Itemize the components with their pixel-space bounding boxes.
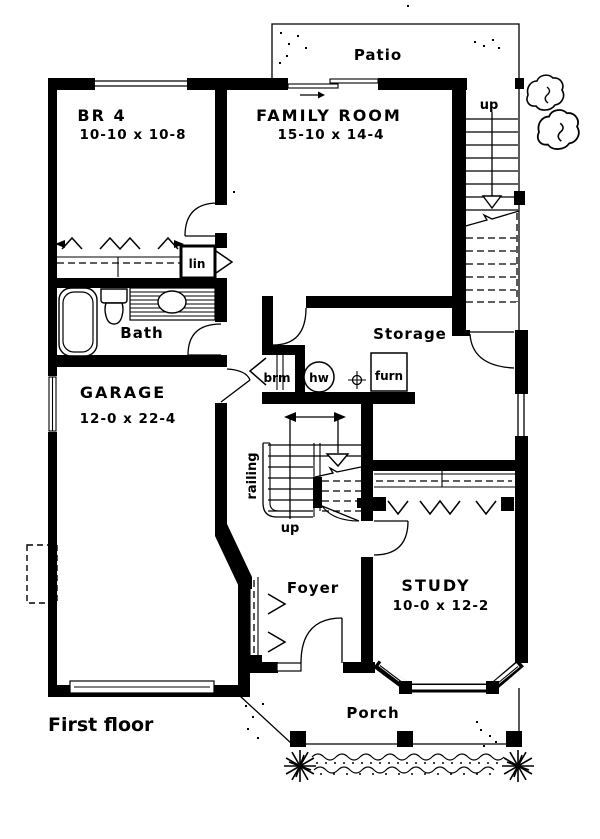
garage-label: GARAGE — [80, 383, 166, 402]
study-label: STUDY — [401, 576, 470, 595]
rear-stair-up-label: up — [480, 98, 499, 113]
br4-dims: 10-10 x 10-8 — [79, 127, 186, 143]
study-side-window — [515, 394, 528, 436]
storage-rear-door — [470, 332, 514, 368]
water-heater-label: hw — [309, 371, 329, 385]
porch-post — [506, 731, 522, 747]
br4-window — [95, 78, 187, 90]
br4-closet — [55, 238, 184, 277]
tree-icon — [538, 110, 579, 149]
porch-post — [397, 731, 413, 747]
patio-label: Patio — [354, 46, 402, 64]
railing-label: railing — [245, 452, 260, 499]
garage-side-window — [48, 376, 57, 432]
bush-icon — [284, 750, 316, 782]
main-stair-up-label: up — [281, 521, 300, 536]
family-room-label: FAMILY ROOM — [256, 106, 402, 125]
bath-label: Bath — [120, 324, 163, 342]
bath-fixtures — [59, 288, 215, 356]
stair-railing — [263, 443, 313, 517]
front-door — [277, 618, 342, 671]
br4-door — [185, 203, 218, 236]
porch-label: Porch — [346, 704, 399, 722]
main-staircase — [263, 412, 361, 519]
bath-door — [188, 324, 221, 355]
vanity-sink — [130, 288, 215, 320]
plan-title: First floor — [48, 714, 154, 736]
stair-direction-arrowhead — [483, 196, 501, 208]
foyer-closet — [250, 577, 285, 657]
slider-arrow-icon — [300, 92, 325, 99]
porch-post — [290, 731, 306, 747]
study-bay-windows — [376, 663, 521, 694]
foyer-label: Foyer — [287, 579, 339, 597]
garage-dims: 12-0 x 22-4 — [80, 411, 177, 427]
study-dims: 10-0 x 12-2 — [393, 598, 490, 614]
garage-entry-door — [221, 369, 250, 402]
toilet — [101, 289, 127, 324]
rear-staircase — [462, 112, 519, 302]
bathtub — [59, 288, 97, 356]
patio-outline — [272, 24, 519, 330]
floor-drain-icon — [348, 371, 366, 389]
family-room-dims: 15-10 x 14-4 — [277, 127, 384, 143]
floor-plan-drawing: Patio BR 4 10-10 x 10-8 FAMILY ROOM 15-1… — [0, 0, 600, 839]
stair-break-line — [315, 467, 361, 477]
landscaping — [284, 75, 579, 782]
understair-door — [322, 506, 359, 521]
garage-vehicle-door — [70, 681, 214, 693]
study-closet — [374, 471, 515, 514]
labels: Patio BR 4 10-10 x 10-8 FAMILY ROOM 15-1… — [48, 46, 498, 736]
storage-label: Storage — [373, 325, 447, 343]
hedge-row — [312, 754, 504, 774]
broom-label: brm — [263, 371, 290, 385]
br4-label: BR 4 — [77, 106, 126, 125]
family-hall-door — [273, 308, 306, 345]
tree-icon — [527, 75, 564, 110]
floor-plan-sheet: Patio BR 4 10-10 x 10-8 FAMILY ROOM 15-1… — [0, 0, 600, 839]
bush-icon — [502, 750, 534, 782]
stair-break-line — [462, 211, 519, 227]
furnace-label: furn — [375, 369, 403, 383]
study-door — [374, 521, 408, 555]
family-sliding-door — [288, 78, 378, 99]
linen-label: lin — [189, 257, 206, 271]
